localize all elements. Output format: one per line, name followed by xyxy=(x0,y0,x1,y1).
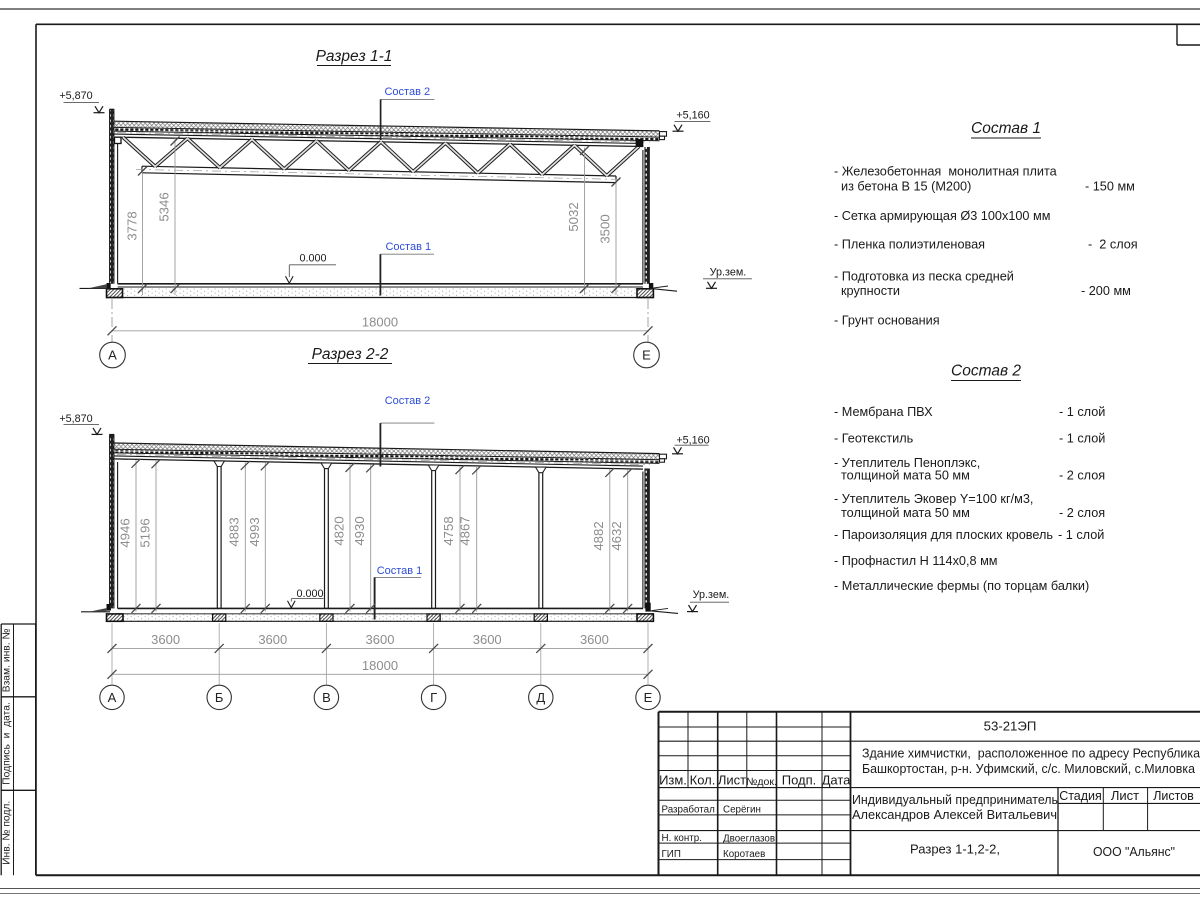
svg-text:4867: 4867 xyxy=(458,516,473,545)
svg-text:4930: 4930 xyxy=(352,516,367,545)
svg-text:Г: Г xyxy=(430,690,437,705)
svg-text:3600: 3600 xyxy=(366,632,395,647)
svg-text:Лист: Лист xyxy=(718,773,746,788)
svg-text:В: В xyxy=(322,690,331,705)
svg-text:Инв. № подл.: Инв. № подл. xyxy=(2,801,13,865)
svg-text:Стадия: Стадия xyxy=(1059,789,1102,803)
svg-text:- Железобетонная монолитная п: - Железобетонная монолитная плита xyxy=(834,165,1058,179)
svg-text:- 2 слоя: - 2 слоя xyxy=(1059,506,1105,520)
svg-text:53-21ЭП: 53-21ЭП xyxy=(984,719,1037,734)
svg-text:- 1 слой: - 1 слой xyxy=(1059,405,1105,419)
svg-text:толщиной мата 50 мм: толщиной мата 50 мм xyxy=(841,469,970,483)
svg-text:Александров Алексей Витальевич: Александров Алексей Витальевич xyxy=(852,807,1057,822)
svg-text:Листов: Листов xyxy=(1153,789,1194,803)
svg-text:Состав 2: Состав 2 xyxy=(385,395,431,407)
svg-text:- Металлические фермы (по торц: - Металлические фермы (по торцам балки) xyxy=(834,579,1089,593)
svg-text:Д: Д xyxy=(536,690,545,705)
svg-text:- Профнастил Н 114х0,8 мм: - Профнастил Н 114х0,8 мм xyxy=(834,554,998,568)
svg-text:+5,160: +5,160 xyxy=(676,435,709,447)
svg-text:- Мембрана ПВХ: - Мембрана ПВХ xyxy=(834,405,933,419)
svg-text:Дата: Дата xyxy=(822,773,852,788)
svg-text:4820: 4820 xyxy=(332,516,347,545)
svg-text:Состав 2: Состав 2 xyxy=(951,363,1021,380)
svg-text:Разработал: Разработал xyxy=(662,805,716,816)
svg-text:Коротаев: Коротаев xyxy=(723,849,765,860)
svg-text:+5,160: +5,160 xyxy=(676,110,709,122)
svg-text:+5,870: +5,870 xyxy=(59,90,92,102)
svg-text:Б: Б xyxy=(215,690,224,705)
svg-text:4883: 4883 xyxy=(227,517,242,546)
svg-text:Разрез 1-1,2-2,: Разрез 1-1,2-2, xyxy=(910,842,1000,857)
svg-text:4758: 4758 xyxy=(441,516,456,545)
svg-text:Ур.зем.: Ур.зем. xyxy=(693,589,730,601)
svg-text:Индивидуальный предприниматель: Индивидуальный предприниматель xyxy=(852,792,1058,807)
svg-text:0.000: 0.000 xyxy=(299,253,326,265)
svg-text:ГИП: ГИП xyxy=(662,849,681,860)
svg-text:Здание химчистки, расположенн: Здание химчистки, расположенное по адрес… xyxy=(862,746,1200,761)
svg-text:- 1 слой: - 1 слой xyxy=(1059,431,1105,445)
svg-text:Е: Е xyxy=(644,690,653,705)
svg-text:5196: 5196 xyxy=(138,518,153,547)
svg-text:Е: Е xyxy=(642,348,651,363)
svg-text:Лист: Лист xyxy=(1111,788,1139,803)
svg-text:- 200 мм: - 200 мм xyxy=(1081,284,1131,298)
svg-text:Состав 1: Состав 1 xyxy=(377,565,423,577)
svg-text:А: А xyxy=(108,690,117,705)
svg-text:Изм.: Изм. xyxy=(659,773,687,788)
svg-text:- 150 мм: - 150 мм xyxy=(1085,180,1135,194)
svg-text:4632: 4632 xyxy=(609,521,624,550)
svg-text:- Геотекстиль: - Геотекстиль xyxy=(834,431,914,445)
svg-text:Подпись и дата.: Подпись и дата. xyxy=(2,702,13,785)
svg-text:18000: 18000 xyxy=(362,315,398,330)
svg-text:А: А xyxy=(108,348,117,363)
svg-text:3600: 3600 xyxy=(258,632,287,647)
svg-text:№док.: №док. xyxy=(746,776,777,788)
svg-text:- Утеплитель Эковер Y=100 кг/м: - Утеплитель Эковер Y=100 кг/м3, xyxy=(834,492,1033,506)
svg-text:- 2 слоя: - 2 слоя xyxy=(1088,238,1138,252)
svg-text:5346: 5346 xyxy=(157,192,172,221)
svg-text:Взам. инв. №: Взам. инв. № xyxy=(2,629,13,693)
svg-text:3778: 3778 xyxy=(125,211,140,240)
svg-text:Подп.: Подп. xyxy=(782,773,817,788)
svg-text:Кол.: Кол. xyxy=(690,773,716,788)
svg-text:Н. контр.: Н. контр. xyxy=(662,833,702,844)
svg-text:0.000: 0.000 xyxy=(296,588,323,600)
svg-text:5032: 5032 xyxy=(566,202,581,231)
svg-text:Состав 1: Состав 1 xyxy=(385,241,431,253)
svg-text:3600: 3600 xyxy=(151,632,180,647)
svg-text:18000: 18000 xyxy=(362,658,398,673)
svg-text:ООО "Альянс": ООО "Альянс" xyxy=(1093,845,1175,859)
svg-text:Серёгин: Серёгин xyxy=(723,805,761,816)
svg-text:Ур.зем.: Ур.зем. xyxy=(710,266,747,278)
svg-text:3600: 3600 xyxy=(580,632,609,647)
svg-text:- Пленка полиэтиленовая: - Пленка полиэтиленовая xyxy=(834,238,985,252)
svg-text:- Сетка армирующая Ø3 100х100: - Сетка армирующая Ø3 100х100 мм xyxy=(834,209,1050,223)
svg-text:- 2 слоя: - 2 слоя xyxy=(1059,469,1105,483)
svg-text:Состав 2: Состав 2 xyxy=(384,86,430,98)
svg-text:3500: 3500 xyxy=(598,214,613,243)
svg-text:- Подготовка из песка средней: - Подготовка из песка средней xyxy=(834,270,1014,284)
svg-text:Двоеглазов: Двоеглазов xyxy=(723,834,775,845)
svg-text:4882: 4882 xyxy=(591,521,606,550)
svg-text:- Грунт основания: - Грунт основания xyxy=(834,313,940,327)
svg-text:- Пароизоляция для плоских кро: - Пароизоляция для плоских кровель xyxy=(834,528,1053,542)
svg-text:4946: 4946 xyxy=(117,518,132,547)
svg-text:Разрез 1-1: Разрез 1-1 xyxy=(316,48,393,65)
svg-text:3600: 3600 xyxy=(473,632,502,647)
svg-text:4993: 4993 xyxy=(247,517,262,546)
svg-text:крупности: крупности xyxy=(841,284,900,298)
svg-text:Состав 1: Состав 1 xyxy=(971,120,1041,137)
svg-text:+5,870: +5,870 xyxy=(59,413,92,425)
svg-text:из бетона В 15 (М200): из бетона В 15 (М200) xyxy=(841,180,971,194)
svg-text:толщиной мата 50 мм: толщиной мата 50 мм xyxy=(841,506,970,520)
svg-text:- 1 слой: - 1 слой xyxy=(1058,528,1104,542)
svg-text:Разрез 2-2: Разрез 2-2 xyxy=(312,346,389,363)
svg-text:Башкортостан, р-н. Уфимский, с: Башкортостан, р-н. Уфимский, с/с. Миловс… xyxy=(862,761,1196,776)
